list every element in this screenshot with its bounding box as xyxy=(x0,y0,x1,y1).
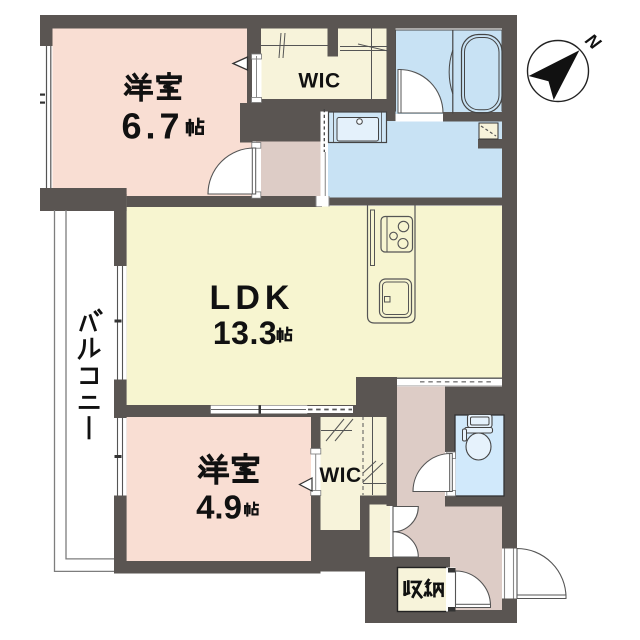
svg-text:WIC: WIC xyxy=(298,70,340,93)
svg-text:WIC: WIC xyxy=(319,464,361,487)
svg-text:LDK: LDK xyxy=(210,279,295,317)
svg-text:6.7: 6.7 xyxy=(121,106,183,147)
svg-text:4.9: 4.9 xyxy=(196,489,242,526)
svg-text:13.3: 13.3 xyxy=(213,315,277,351)
